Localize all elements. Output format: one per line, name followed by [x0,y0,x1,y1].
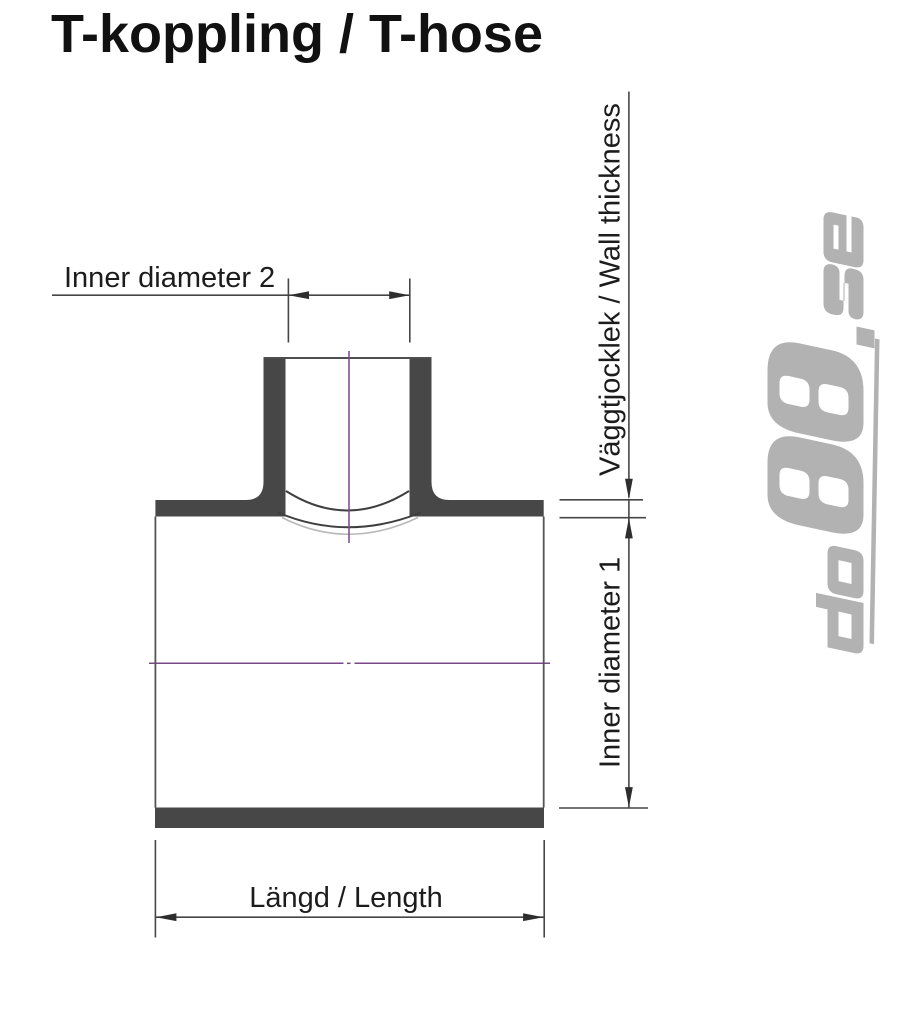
svg-text:T-koppling / T-hose: T-koppling / T-hose [51,4,543,64]
svg-text:Längd / Length: Längd / Length [249,882,443,914]
svg-text:Väggtjocklek / Wall thickness: Väggtjocklek / Wall thickness [595,103,627,476]
svg-text:Inner diameter 1: Inner diameter 1 [595,557,627,768]
svg-text:Inner diameter 2: Inner diameter 2 [64,262,275,294]
